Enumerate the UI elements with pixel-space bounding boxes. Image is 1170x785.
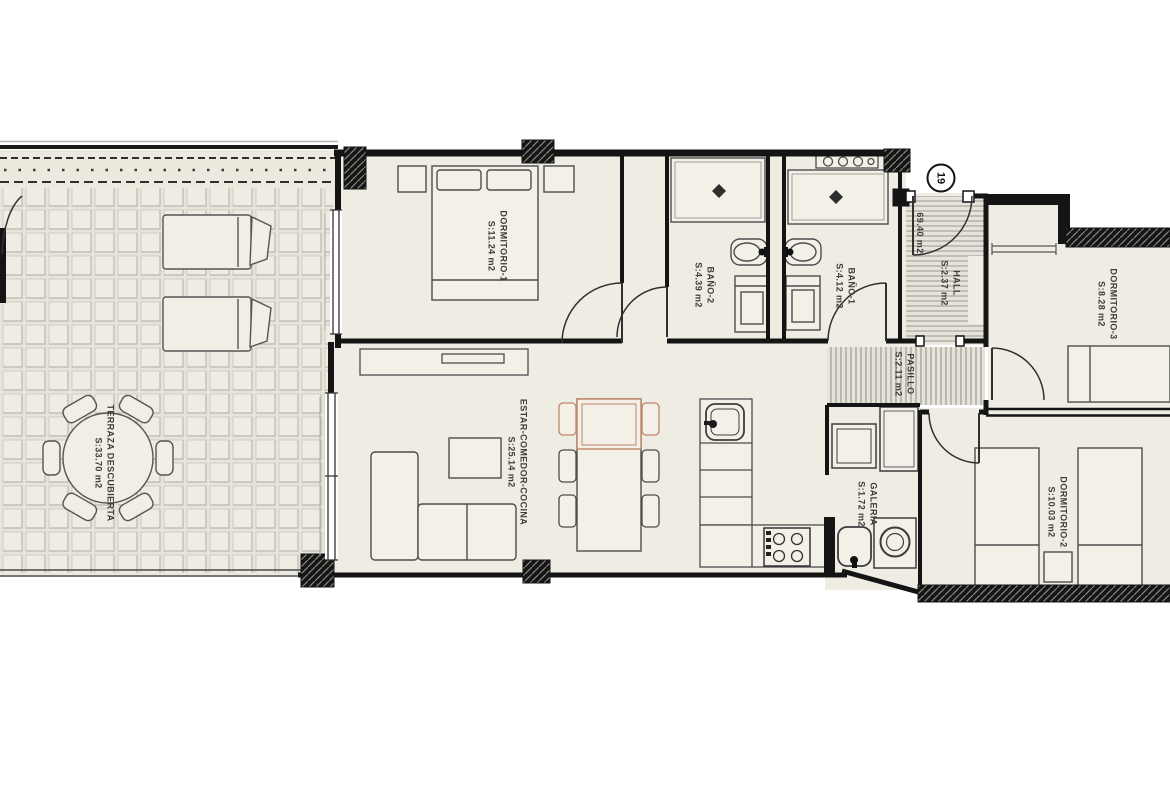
- total-area-label: 69.40 m2: [915, 212, 925, 253]
- towel-radiator: [816, 155, 878, 168]
- dining-chair: [642, 403, 659, 435]
- tv-cabinet: [360, 349, 528, 375]
- toilet: [735, 276, 769, 332]
- sun-lounger: [163, 297, 271, 351]
- dining-chair: [642, 450, 659, 482]
- double-bed: [432, 166, 538, 300]
- nightstand: [1044, 552, 1072, 582]
- sun-lounger: [163, 215, 271, 269]
- shower: [671, 158, 765, 222]
- stove: [764, 528, 810, 566]
- single-bed: [975, 448, 1039, 588]
- washbasin: [784, 239, 821, 265]
- pasillo-hatch: [827, 347, 985, 405]
- kitchen-sink: [704, 404, 744, 440]
- floor-plan-svg: [0, 0, 1170, 785]
- toilet: [786, 276, 820, 330]
- single-bed: [1068, 346, 1170, 402]
- floor-plan-page: TERRAZA DESCUBIERTA S:33.70 m2 DORMITORI…: [0, 0, 1170, 785]
- washing-machine: [874, 518, 916, 568]
- hall-cabinet: [968, 256, 984, 324]
- dining-table: [577, 399, 641, 551]
- washbasin: [731, 239, 768, 265]
- terraza-planter-band: [0, 152, 336, 188]
- single-bed: [1078, 448, 1142, 588]
- galeria-sink: [838, 527, 871, 568]
- unit-number-badge: 19: [927, 164, 956, 193]
- nightstand: [544, 166, 574, 192]
- dining-chair: [559, 495, 576, 527]
- dining-chair: [559, 403, 576, 435]
- coffee-table: [449, 438, 501, 478]
- outdoor-table-set: [43, 393, 173, 523]
- dining-chair: [642, 495, 659, 527]
- nightstand: [398, 166, 426, 192]
- unit-number: 19: [935, 172, 947, 184]
- shower: [788, 170, 888, 224]
- dining-chair: [559, 450, 576, 482]
